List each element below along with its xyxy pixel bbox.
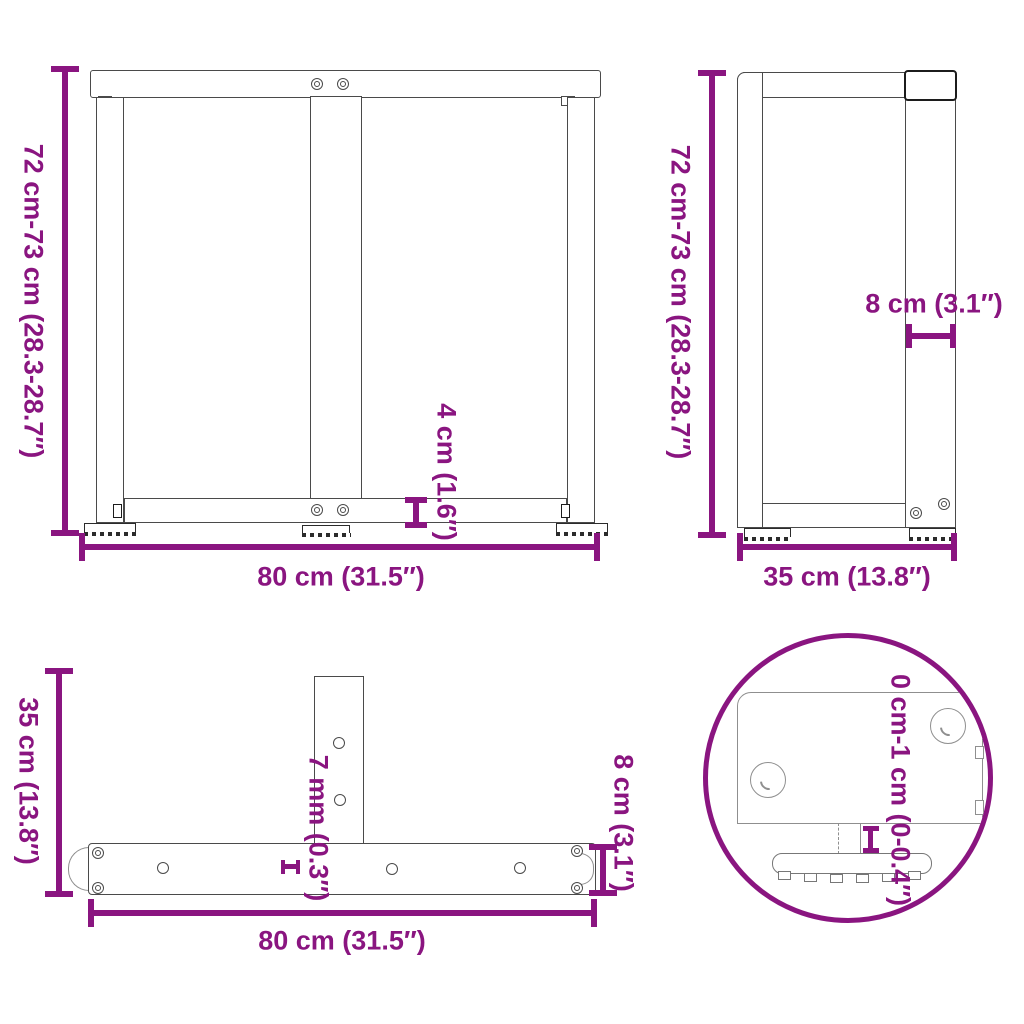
side-front-member [737, 72, 763, 528]
adjustable-foot [84, 523, 136, 532]
screw-icon [571, 882, 583, 894]
adjustable-foot [302, 525, 350, 533]
adjustable-foot [909, 528, 956, 537]
top-bar-end-arc-left [68, 847, 89, 891]
top-bar-width-dimension-marker [600, 844, 606, 896]
front-center-column [310, 96, 362, 499]
foot-tooth [856, 874, 869, 883]
screw-icon [910, 507, 922, 519]
front-rail-bracket-left [113, 504, 122, 518]
screw-hole [386, 863, 398, 875]
top-bar-width-label: 8 cm (3.1″) [610, 754, 637, 892]
side-height-label: 72 cm-73 cm (28.3-28.7″) [667, 145, 694, 460]
front-height-label: 72 cm-73 cm (28.3-28.7″) [20, 144, 47, 459]
side-depth-label: 35 cm (13.8″) [763, 564, 931, 591]
screw-hole [333, 737, 345, 749]
adjustable-foot [744, 528, 791, 537]
side-bottom-rail [762, 503, 906, 528]
screw-icon [92, 847, 104, 859]
screw-icon [930, 708, 966, 744]
product-dimension-diagram: 72 cm-73 cm (28.3-28.7″) 80 cm (31.5″) 4… [0, 0, 1024, 1024]
front-rail-dimension-marker [413, 497, 419, 528]
foot-tooth [830, 874, 843, 883]
detail-foot-adjust-label: 0 cm-1 cm (0-0.4″) [887, 674, 914, 906]
screw-hole [514, 862, 526, 874]
screw-icon [337, 78, 349, 90]
foot-detail-circle: 0 cm-1 cm (0-0.4″) [703, 633, 993, 923]
screw-icon [938, 498, 950, 510]
detail-adjust-dimension-marker [868, 826, 873, 853]
side-depth-dimension-line [737, 544, 957, 550]
screw-hole [157, 862, 169, 874]
front-height-dimension-line [62, 66, 68, 536]
detail-foot-stem [838, 823, 861, 854]
side-top-bar-dimension-marker [906, 333, 956, 339]
detail-edge-notch [975, 746, 984, 759]
screw-icon [311, 504, 323, 516]
screw-hole [334, 794, 346, 806]
front-rail-height-label: 4 cm (1.6″) [433, 403, 460, 541]
foot-tooth [804, 873, 817, 882]
adjustable-foot [556, 523, 608, 532]
front-leg-right [567, 97, 595, 523]
screw-icon [571, 845, 583, 857]
side-top-bar-label: 8 cm (3.1″) [865, 291, 1003, 318]
side-top-cap [904, 70, 957, 101]
detail-edge-notch [975, 800, 984, 815]
front-leg-left [96, 97, 124, 523]
top-plate-thickness-label: 7 mm (0.3″) [305, 755, 332, 901]
top-depth-label: 35 cm (13.8″) [15, 697, 42, 865]
front-width-dimension-line [79, 544, 600, 550]
screw-icon [750, 762, 786, 798]
screw-icon [337, 504, 349, 516]
front-rail-bracket-right [561, 504, 570, 518]
side-height-dimension-line [709, 70, 715, 538]
top-depth-dimension-line [56, 668, 62, 897]
top-width-dimension-line [88, 910, 597, 916]
top-plate-thickness-marker [281, 864, 300, 869]
screw-icon [311, 78, 323, 90]
screw-icon [92, 882, 104, 894]
front-width-label: 80 cm (31.5″) [257, 564, 425, 591]
top-width-label: 80 cm (31.5″) [258, 928, 426, 955]
foot-tooth [778, 871, 791, 880]
